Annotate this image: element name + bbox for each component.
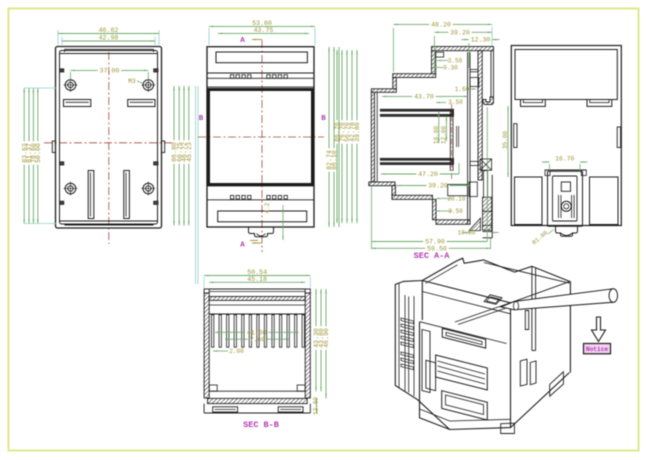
svg-text:46.90: 46.90: [323, 328, 330, 348]
svg-text:A: A: [240, 37, 245, 45]
svg-text:43.70: 43.70: [414, 94, 434, 101]
svg-text:53.60: 53.60: [252, 20, 272, 27]
svg-text:50.00: 50.00: [35, 143, 42, 163]
svg-text:A: A: [240, 242, 245, 250]
svg-text:35.00: 35.00: [502, 131, 509, 149]
svg-text:43.75: 43.75: [254, 27, 274, 34]
svg-text:12.00: 12.00: [441, 126, 448, 144]
svg-text:48.20: 48.20: [431, 22, 451, 29]
svg-text:3.50: 3.50: [448, 208, 463, 215]
svg-text:37.00: 37.00: [100, 68, 120, 75]
svg-text:39.20: 39.20: [450, 29, 470, 36]
svg-text:4.2: 4.2: [264, 202, 271, 213]
svg-text:42.98: 42.98: [99, 35, 119, 42]
svg-text:16.70: 16.70: [555, 156, 574, 163]
svg-text:0.30: 0.30: [443, 65, 458, 72]
svg-text:3.50: 3.50: [448, 58, 463, 65]
svg-text:3.50: 3.50: [448, 99, 463, 106]
svg-text:M3: M3: [128, 78, 136, 85]
svg-text:39.80: 39.80: [354, 122, 361, 142]
svg-text:1.60: 1.60: [455, 86, 470, 93]
svg-text:12.60: 12.60: [313, 397, 320, 415]
svg-text:SEC A-A: SEC A-A: [414, 251, 451, 261]
svg-text:B: B: [321, 115, 326, 123]
svg-text:45.18: 45.18: [247, 276, 267, 283]
svg-text:B: B: [199, 115, 204, 123]
svg-text:7.00: 7.00: [250, 336, 266, 343]
svg-text:SEC B-B: SEC B-B: [243, 420, 279, 430]
svg-text:47.20: 47.20: [418, 171, 438, 178]
svg-text:10.50: 10.50: [457, 230, 475, 237]
svg-text:39.20: 39.20: [428, 183, 448, 190]
svg-text:2.00: 2.00: [229, 348, 244, 355]
svg-text:20.10: 20.10: [447, 196, 465, 203]
svg-text:12.30: 12.30: [471, 37, 491, 44]
svg-text:Notice: Notice: [586, 346, 609, 353]
svg-text:16.00: 16.00: [433, 126, 440, 144]
svg-text:46.62: 46.62: [99, 27, 119, 34]
svg-text:45.23: 45.23: [186, 142, 193, 162]
